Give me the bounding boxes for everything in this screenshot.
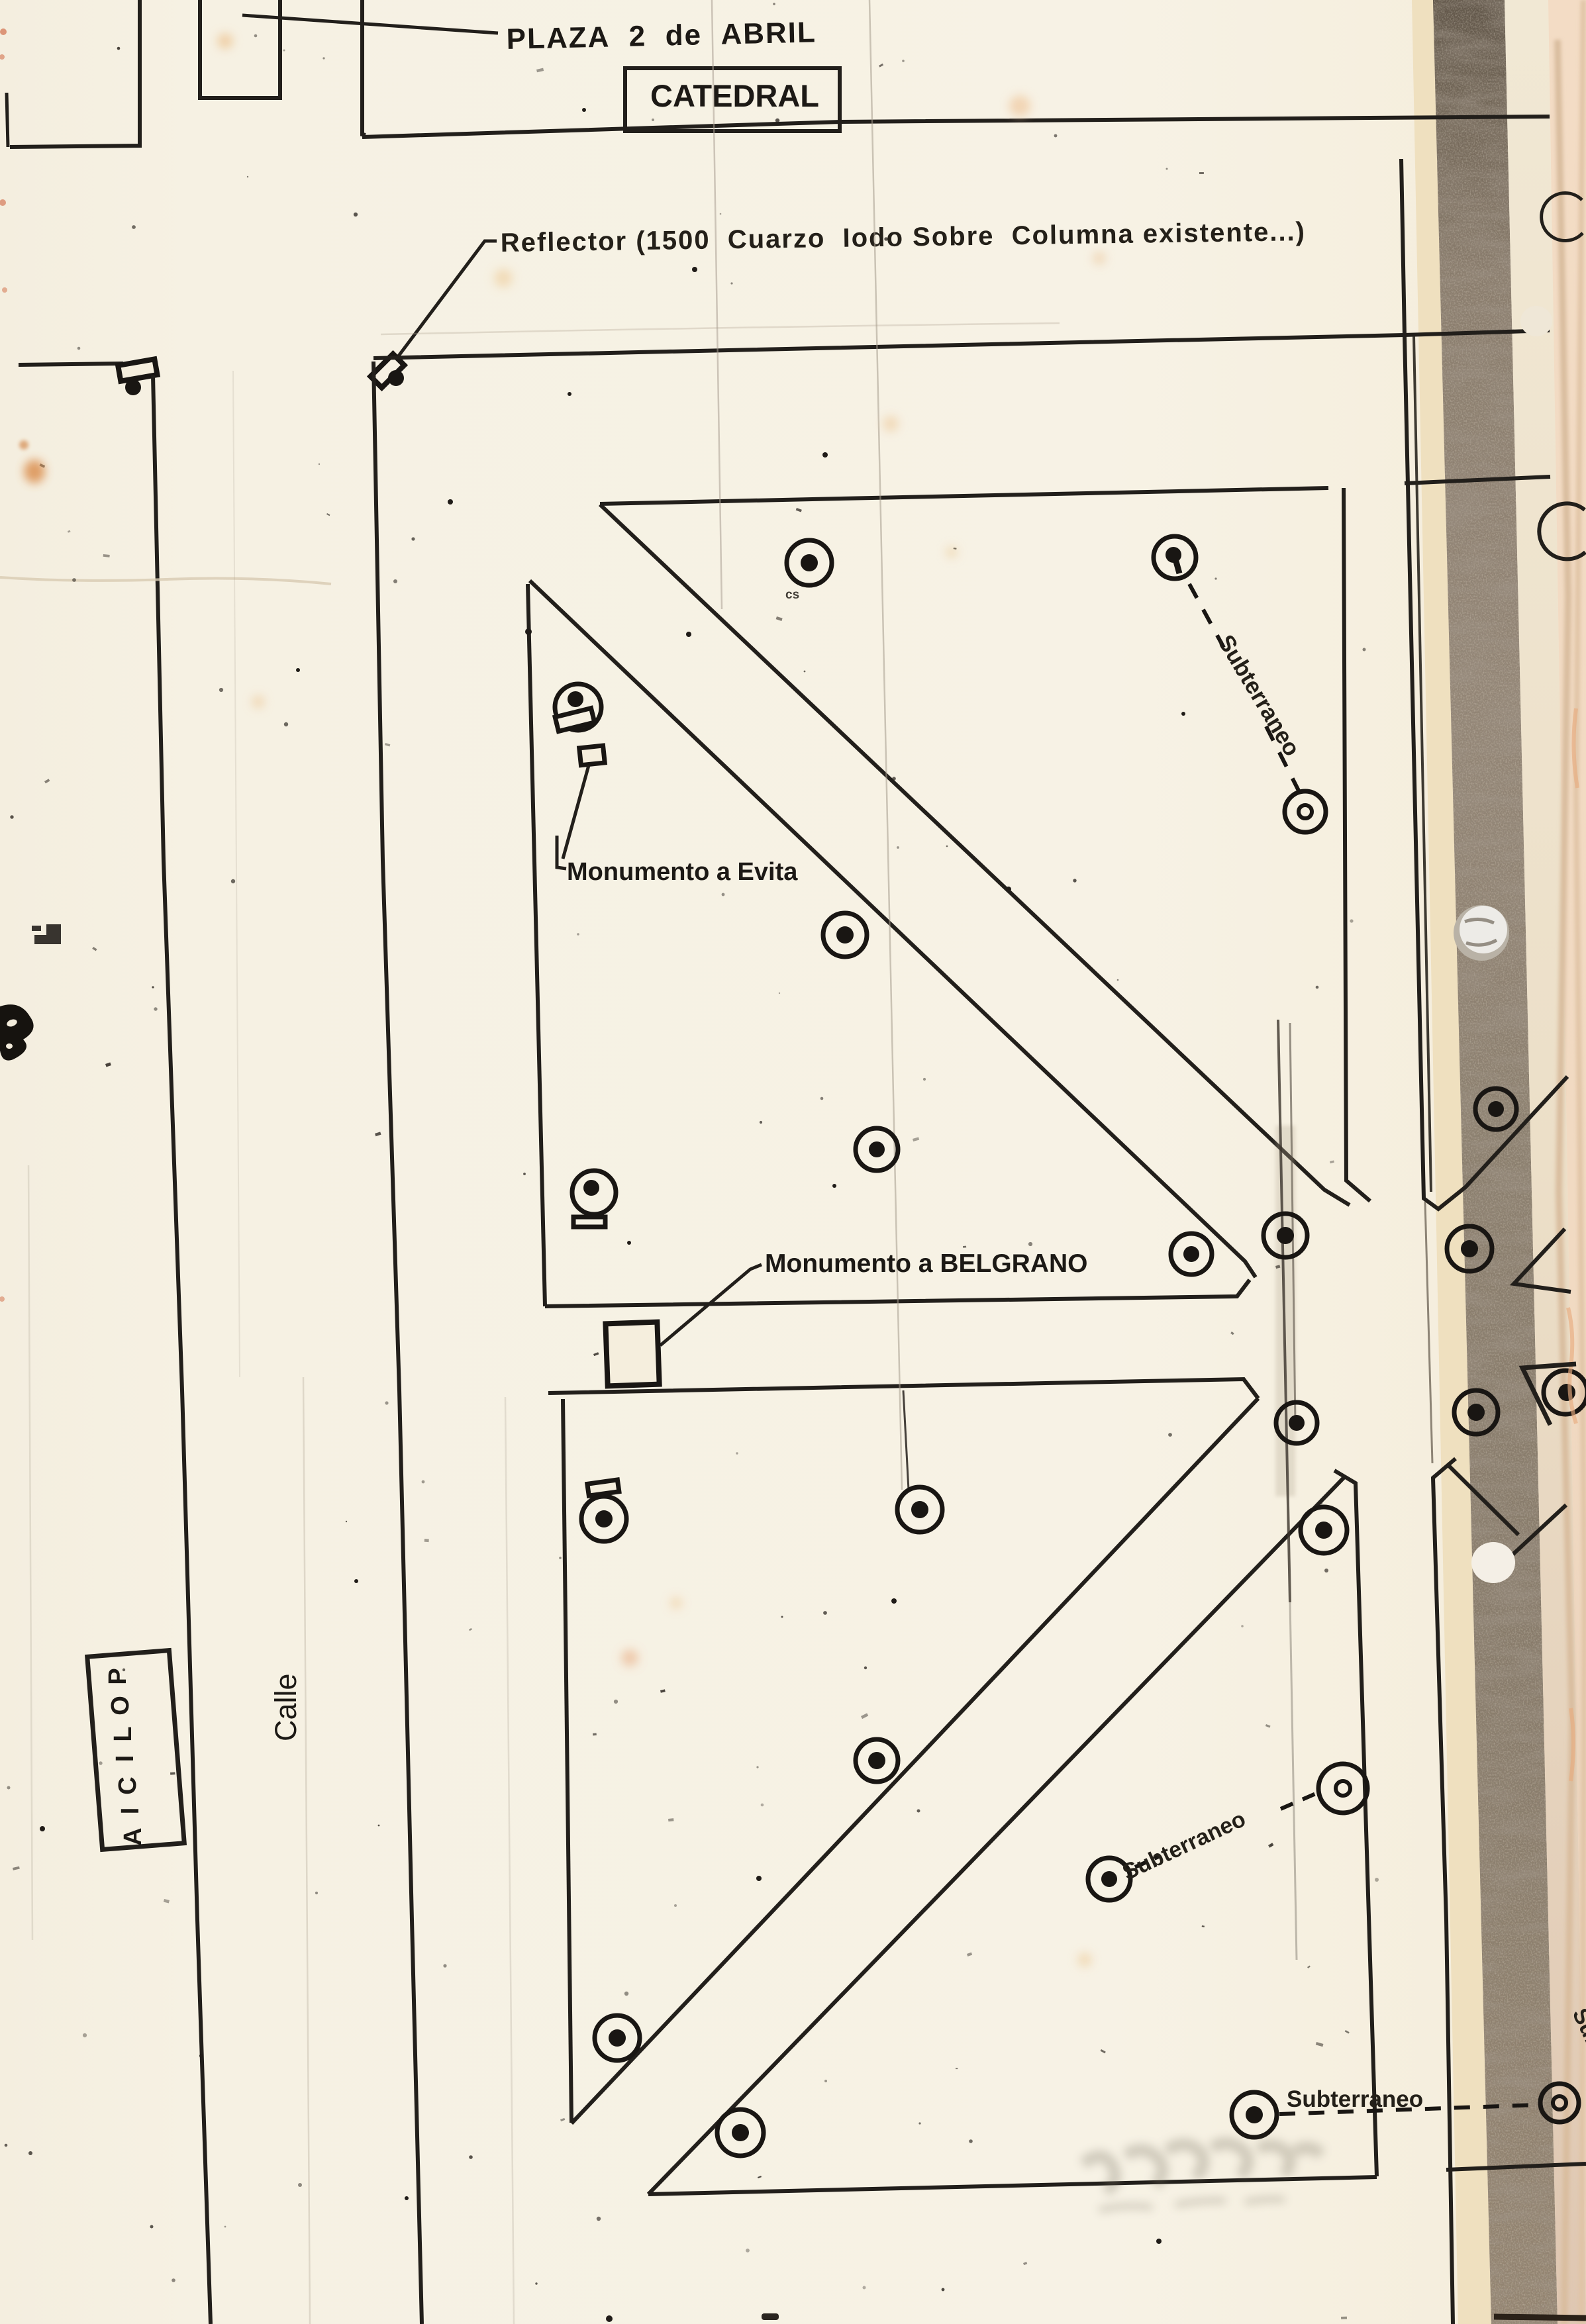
svg-text:Calle: Calle [269, 1673, 303, 1741]
svg-text:C: C [114, 1776, 142, 1794]
svg-text:Monumento a Evita: Monumento a Evita [567, 858, 798, 886]
svg-text:Monumento a BELGRANO: Monumento a BELGRANO [765, 1249, 1087, 1278]
svg-text:L: L [109, 1726, 137, 1741]
svg-text:P: P [104, 1668, 132, 1684]
svg-text:I: I [117, 1808, 144, 1815]
svg-text:O: O [107, 1696, 134, 1716]
svg-text:cs: cs [785, 588, 799, 602]
svg-text:A: A [119, 1827, 147, 1845]
svg-text:I: I [111, 1755, 139, 1763]
svg-text:CATEDRAL: CATEDRAL [650, 78, 819, 113]
